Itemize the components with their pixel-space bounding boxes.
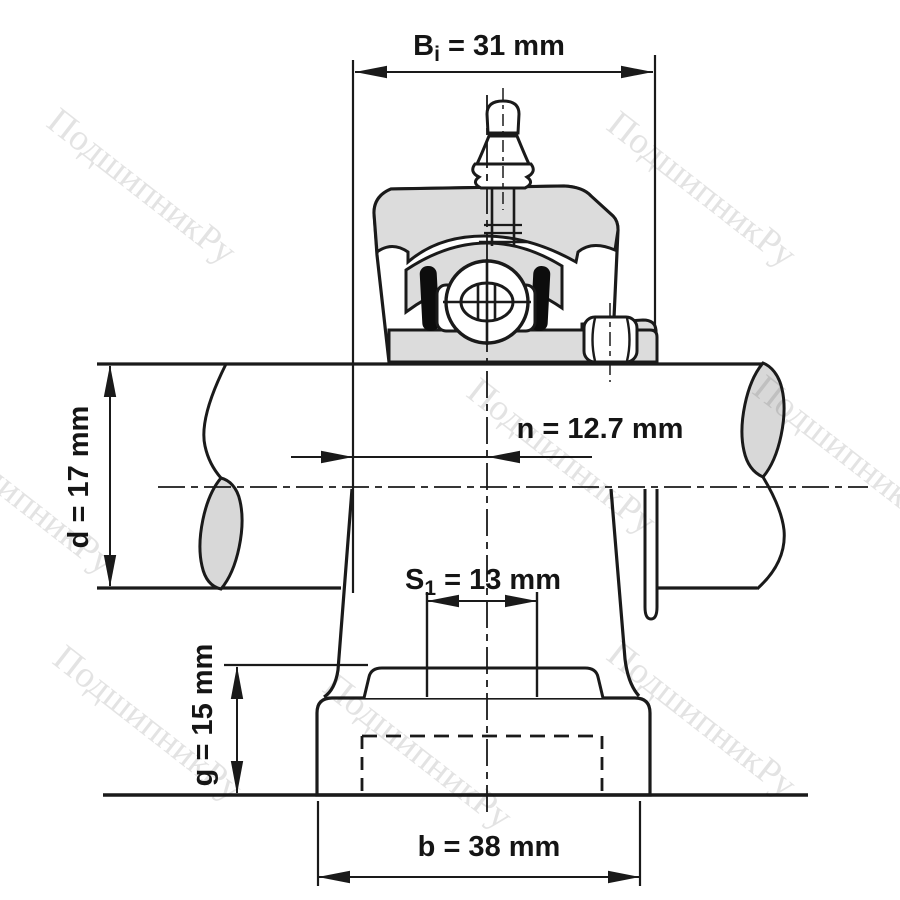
dim-b-label: b = 38 mm <box>418 831 561 863</box>
dim-n-label: n = 12.7 mm <box>517 413 684 445</box>
pedestal-side-right <box>611 489 639 696</box>
dim-s1-label: S1 = 13 mm <box>405 564 561 600</box>
shaft-break-right-s <box>757 477 784 589</box>
inner-ring-extension <box>645 489 657 619</box>
technical-drawing-canvas: Bi = 31 mm n = 12.7 mm d = 17 mm S1 = 13… <box>0 0 900 900</box>
shaft-break-right-lens <box>742 363 784 477</box>
base-collar-step <box>364 668 603 698</box>
dim-n-arrow-right <box>488 451 520 463</box>
dim-s1-arrow-right <box>505 595 537 607</box>
shaft-break-left-lens <box>200 478 242 589</box>
dim-n <box>291 451 592 463</box>
dim-d-arrow-bottom <box>104 555 116 587</box>
dim-n-arrow-left <box>321 451 353 463</box>
dim-g-arrow-bottom <box>231 761 243 794</box>
dim-g-arrow-top <box>231 666 243 699</box>
dim-b-arrow-left <box>318 871 350 883</box>
shaft-break-left-s <box>204 364 226 478</box>
dim-bi-arrow-left <box>355 66 387 78</box>
dim-bi-label: Bi = 31 mm <box>413 30 565 66</box>
dim-s1 <box>427 595 537 607</box>
bearing-dimension-diagram: Bi = 31 mm n = 12.7 mm d = 17 mm S1 = 13… <box>0 0 900 900</box>
dim-d <box>104 365 116 587</box>
dim-d-arrow-top <box>104 365 116 397</box>
dim-bi-arrow-right <box>621 66 653 78</box>
dim-d-label: d = 17 mm <box>63 406 95 549</box>
dim-g-label: g = 15 mm <box>187 644 219 787</box>
base-plate <box>317 698 650 795</box>
dim-b-arrow-right <box>608 871 640 883</box>
